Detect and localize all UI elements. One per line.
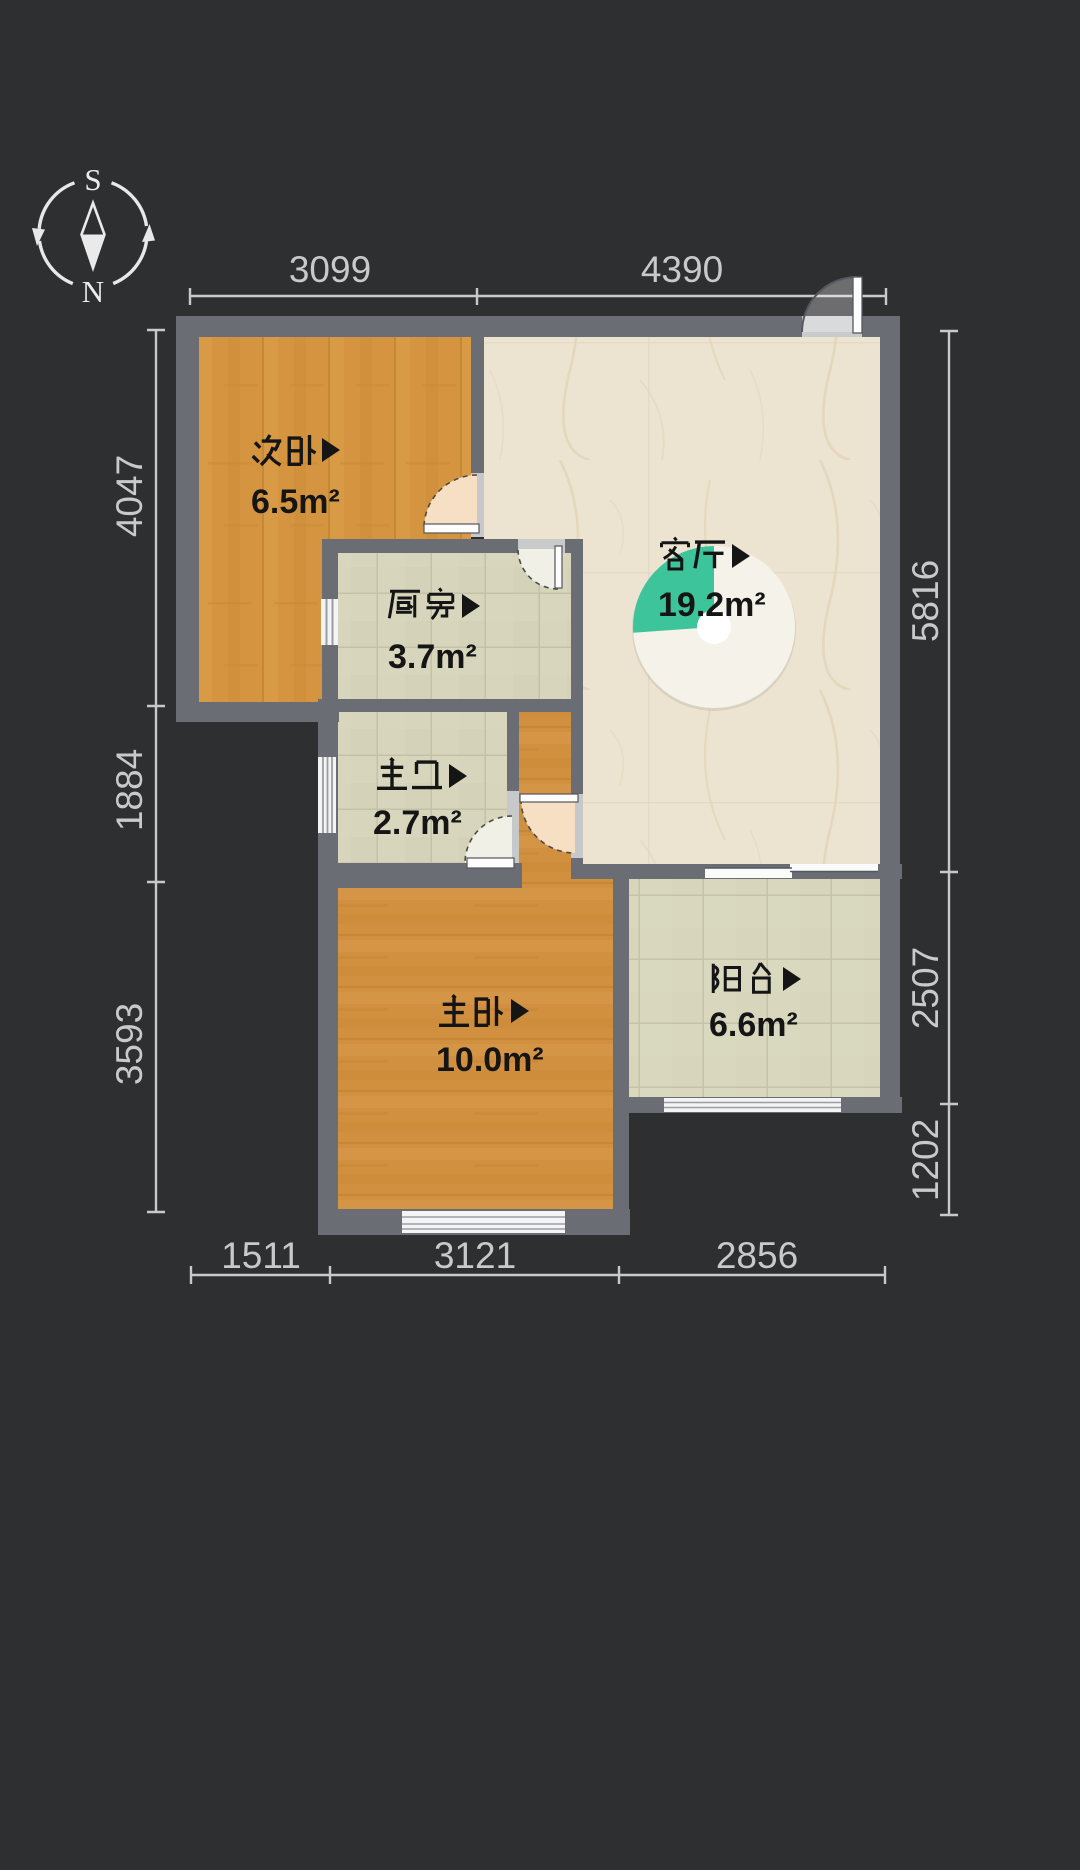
svg-text:3593: 3593 bbox=[109, 1003, 150, 1085]
svg-text:3099: 3099 bbox=[289, 249, 371, 290]
svg-text:3.7m²: 3.7m² bbox=[388, 638, 477, 676]
svg-text:4047: 4047 bbox=[109, 455, 150, 537]
svg-text:2.7m²: 2.7m² bbox=[373, 804, 462, 842]
svg-text:10.0m²: 10.0m² bbox=[436, 1041, 544, 1079]
svg-text:2856: 2856 bbox=[716, 1235, 798, 1276]
svg-text:N: N bbox=[82, 274, 104, 309]
svg-text:1511: 1511 bbox=[221, 1235, 301, 1276]
svg-text:S: S bbox=[84, 162, 101, 197]
svg-text:1202: 1202 bbox=[905, 1119, 946, 1201]
svg-text:6.5m²: 6.5m² bbox=[251, 483, 340, 521]
svg-text:5816: 5816 bbox=[905, 560, 946, 642]
svg-text:4390: 4390 bbox=[641, 249, 723, 290]
svg-text:3121: 3121 bbox=[434, 1235, 516, 1276]
svg-text:1884: 1884 bbox=[109, 749, 150, 831]
svg-text:2507: 2507 bbox=[905, 947, 946, 1029]
svg-text:6.6m²: 6.6m² bbox=[709, 1006, 798, 1044]
svg-text:19.2m²: 19.2m² bbox=[658, 586, 766, 624]
